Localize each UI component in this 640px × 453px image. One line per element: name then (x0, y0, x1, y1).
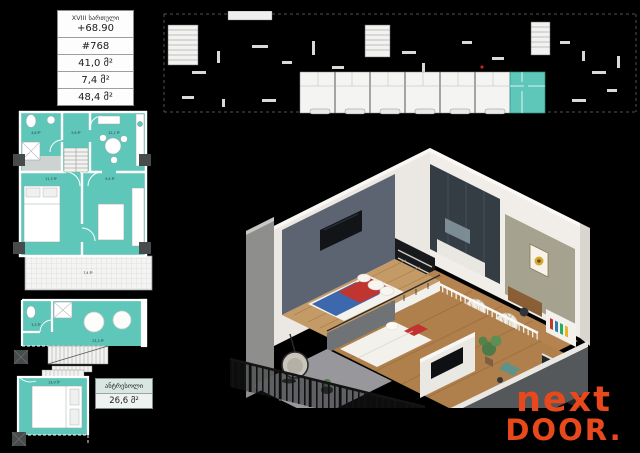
stairs-icon (64, 148, 88, 172)
marker-dot (480, 65, 483, 68)
svg-text:4,6 მ²: 4,6 მ² (31, 131, 41, 135)
svg-text:9,4 მ²: 9,4 მ² (105, 177, 115, 181)
apartment-3d-render (190, 118, 595, 408)
unit-number: #768 (58, 37, 133, 54)
logo-line2: DOOR. (498, 416, 630, 445)
unit-info-table: XVIII სართული +68.90 #768 41,0 მ² 7,4 მ²… (57, 10, 134, 106)
unit-band (300, 72, 510, 114)
page: XVIII სართული +68.90 #768 41,0 მ² 7,4 მ²… (0, 0, 640, 453)
roof-tab (228, 11, 272, 20)
svg-text:3,3 მ²: 3,3 მ² (31, 323, 41, 327)
area-living: 41,0 მ² (58, 54, 133, 71)
svg-text:11,3 მ²: 11,3 მ² (45, 177, 57, 181)
logo-dot: . (610, 413, 623, 447)
svg-text:23,3 მ²: 23,3 მ² (92, 339, 104, 343)
mezzanine-label-box: ანტრესოლი 26,6 მ² (95, 378, 153, 409)
structural-column (12, 432, 26, 446)
mezzanine-floor-plan: 3,3 მ² 23,3 მ² (6, 294, 156, 374)
void-edge (18, 435, 88, 445)
elevation-value: +68.90 (58, 22, 133, 37)
bed-icon (24, 186, 60, 242)
highlighted-unit[interactable] (510, 72, 545, 113)
structural-column (14, 350, 28, 364)
mezzanine-title: ანტრესოლი (96, 379, 152, 393)
stairs-icon (48, 346, 108, 364)
main-floor-plan: 4,6 მ² 5,6 მ² 12,1 მ² 11,3 მ² 9,4 მ² 7,4… (6, 108, 158, 294)
area-total: 48,4 მ² (58, 88, 133, 105)
area-balcony: 7,4 მ² (58, 71, 133, 88)
room-area-label: 13,9 მ² (48, 381, 60, 385)
svg-text:7,4 მ²: 7,4 მ² (83, 271, 93, 275)
desk-chair (520, 308, 529, 317)
floor-label: XVIII სართული (58, 11, 133, 22)
mezzanine-area: 26,6 მ² (96, 393, 152, 408)
svg-text:5,6 მ²: 5,6 მ² (71, 131, 81, 135)
nextdoor-logo: next DOOR. (498, 383, 630, 445)
bedroom-floor-plan: 13,9 მ² (6, 368, 101, 453)
bed-icon (32, 386, 82, 428)
svg-text:12,1 მ²: 12,1 მ² (108, 131, 120, 135)
building-floor-strip-plan (162, 11, 639, 115)
